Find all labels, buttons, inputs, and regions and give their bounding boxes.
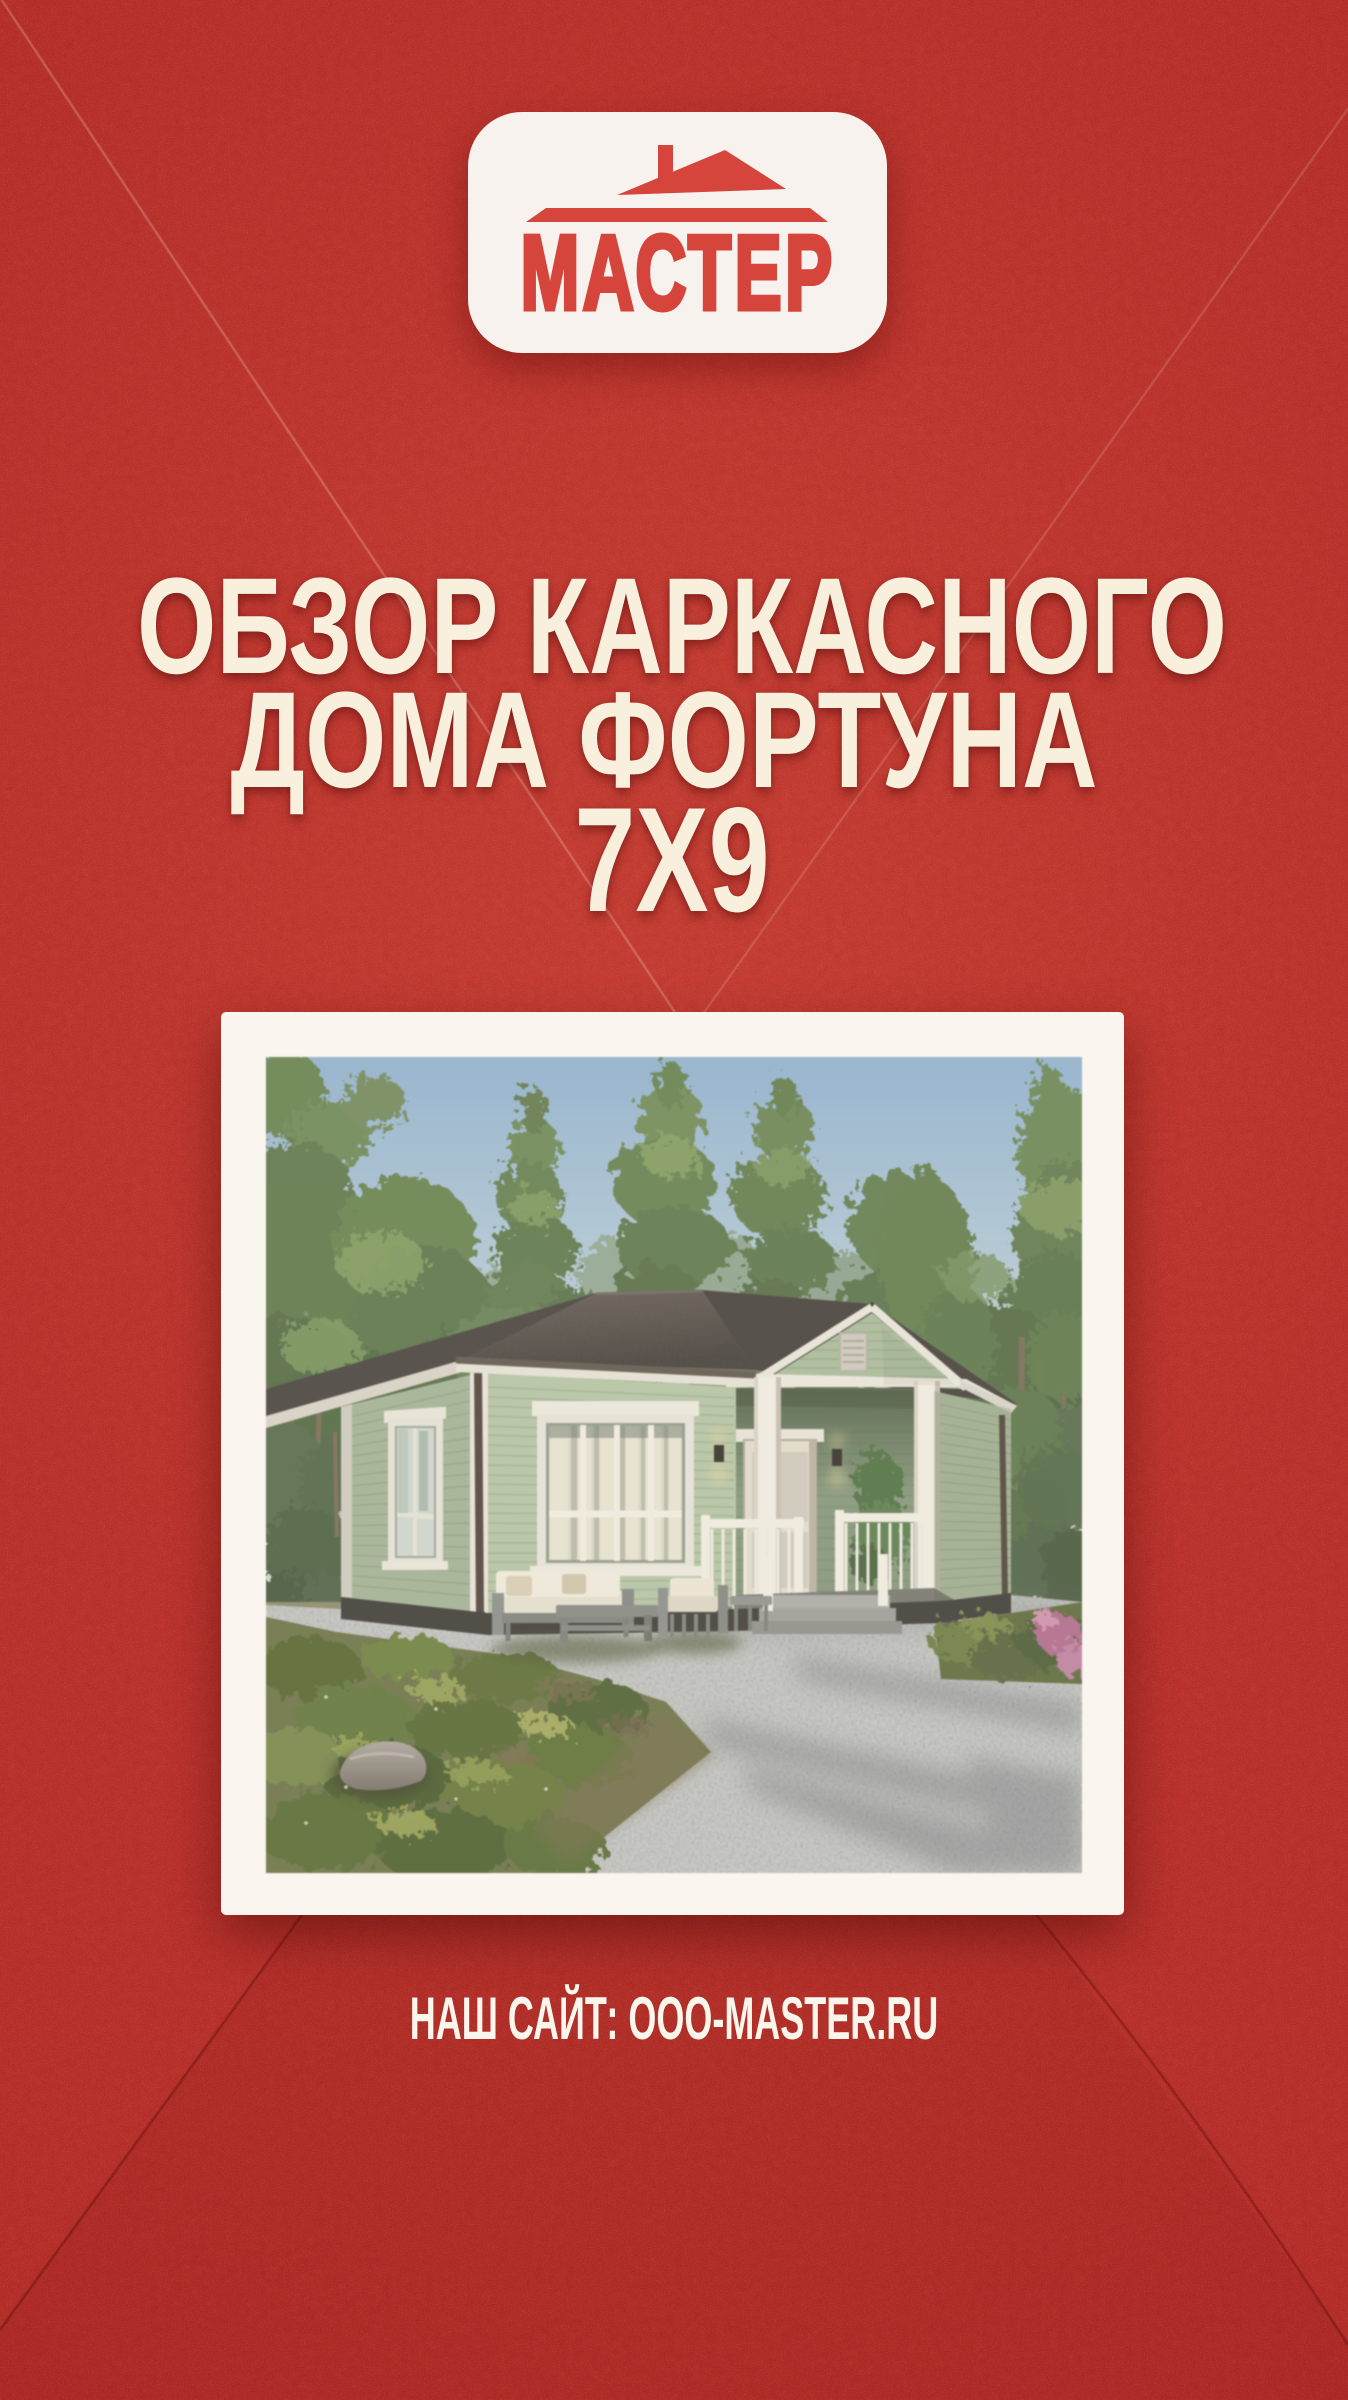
svg-text:7Х9: 7Х9	[574, 777, 769, 943]
svg-text:НАШ САЙТ: ООО-MASTER.RU: НАШ САЙТ: ООО-MASTER.RU	[410, 1983, 939, 2052]
